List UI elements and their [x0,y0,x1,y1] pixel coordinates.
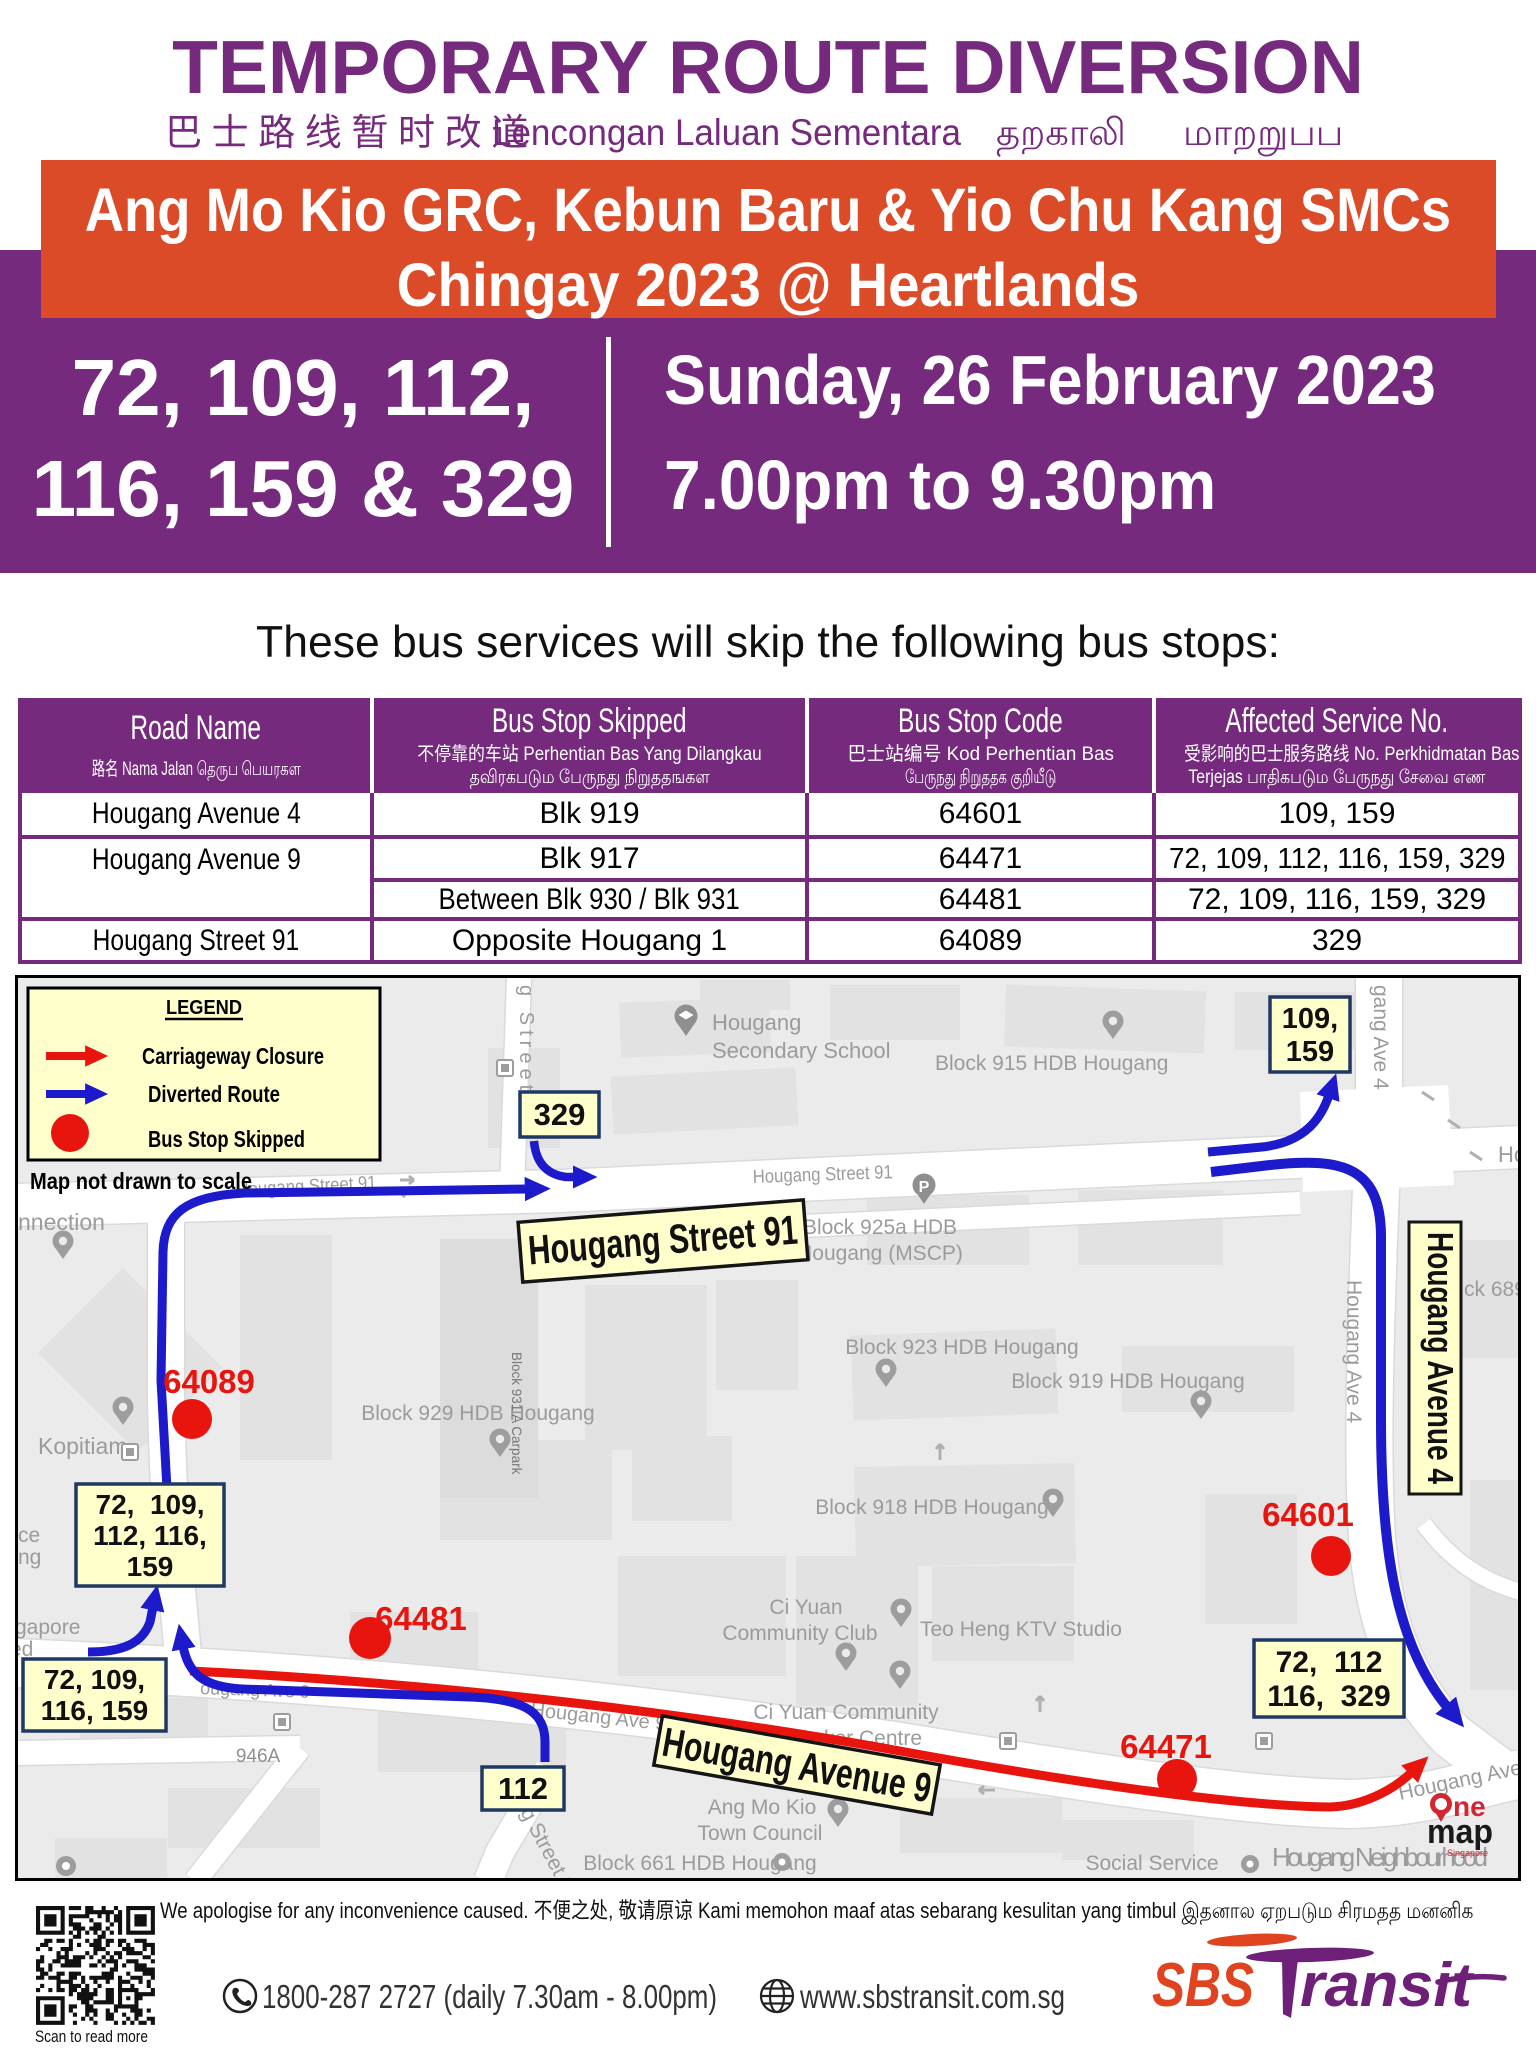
svg-text:64471: 64471 [1120,1728,1212,1765]
svg-text:64089: 64089 [163,1363,255,1400]
svg-text:Teo Heng KTV Studio: Teo Heng KTV Studio [920,1618,1122,1641]
svg-text:Block 929 HDB Hougang: Block 929 HDB Hougang [361,1402,594,1425]
svg-text:Scan to read more: Scan to read more [35,2027,148,2046]
svg-text:72, 109,: 72, 109, [44,1664,145,1695]
svg-text:Bus Stop Skipped: Bus Stop Skipped [148,1126,305,1152]
svg-text:64601: 64601 [1262,1496,1354,1533]
svg-text:Ang Mo Kio: Ang Mo Kio [708,1796,817,1819]
svg-text:Social Service: Social Service [1085,1852,1218,1875]
svg-text:Hougang Ave 4: Hougang Ave 4 [1342,1280,1365,1424]
svg-text:g Street 92: g Street 92 [516,1804,585,1878]
svg-text:64481: 64481 [375,1600,467,1637]
svg-text:Carriageway Closure: Carriageway Closure [142,1043,324,1069]
svg-text:Hougang Avenue 4: Hougang Avenue 4 [1420,1232,1461,1484]
svg-text:ce: ce [18,1524,40,1547]
svg-text:Block 925a HDB: Block 925a HDB [803,1216,957,1239]
svg-text:946A: 946A [236,1746,281,1767]
svg-text:Block 923 HDB Hougang: Block 923 HDB Hougang [845,1336,1078,1359]
svg-text:LEGEND: LEGEND [166,997,242,1019]
svg-text:ng: ng [18,1546,41,1569]
svg-text:Map not drawn to scale: Map not drawn to scale [30,1168,252,1194]
svg-text:Ci Yuan: Ci Yuan [769,1596,842,1619]
svg-text:Block 918 HDB Hougang: Block 918 HDB Hougang [815,1496,1048,1519]
svg-text:109,: 109, [1282,1003,1338,1035]
svg-text:Hougang: Hougang [712,1010,801,1035]
svg-text:P: P [919,1179,930,1196]
svg-text:Ci Yuan Community: Ci Yuan Community [753,1701,939,1724]
svg-text:1800-287 2727 (daily 7.30am -: 1800-287 2727 (daily 7.30am - 8.00pm) [262,1978,717,2015]
svg-text:Town Council: Town Council [698,1822,823,1845]
svg-text:www.sbstransit.com.sg: www.sbstransit.com.sg [799,1978,1065,2015]
svg-text:Block 931 A Carpark: Block 931 A Carpark [509,1352,524,1475]
svg-text:Singapore: Singapore [1447,1848,1488,1858]
svg-text:Block 915 HDB Hougang: Block 915 HDB Hougang [935,1052,1168,1075]
svg-text:159: 159 [1286,1036,1334,1068]
svg-text:116, 329: 116, 329 [1267,1680,1390,1713]
svg-text:Kopitiam: Kopitiam [38,1433,127,1459]
svg-text:gapore: gapore [18,1616,80,1639]
svg-text:ck 689: ck 689 [1464,1278,1518,1301]
svg-text:map: map [1427,1813,1493,1851]
svg-text:SBS: SBS [1152,1951,1254,2020]
svg-text:ransit: ransit [1300,1951,1474,2020]
svg-text:112: 112 [498,1771,548,1806]
svg-text:Secondary School: Secondary School [712,1038,891,1063]
svg-text:116, 159: 116, 159 [41,1695,148,1726]
svg-text:159: 159 [127,1551,174,1582]
svg-text:Block 919 HDB Hougang: Block 919 HDB Hougang [1011,1370,1244,1393]
svg-text:Diverted Route: Diverted Route [148,1081,280,1107]
svg-text:Hou: Hou [1498,1142,1518,1167]
svg-text:gang Ave 4: gang Ave 4 [1369,985,1392,1090]
svg-text:Hougang (MSCP): Hougang (MSCP) [797,1242,963,1265]
svg-text:72, 109,: 72, 109, [96,1489,205,1520]
svg-text:72, 112: 72, 112 [1276,1646,1383,1679]
svg-text:Community Club: Community Club [722,1622,877,1645]
svg-text:329: 329 [534,1097,586,1132]
svg-text:112, 116,: 112, 116, [93,1520,207,1551]
